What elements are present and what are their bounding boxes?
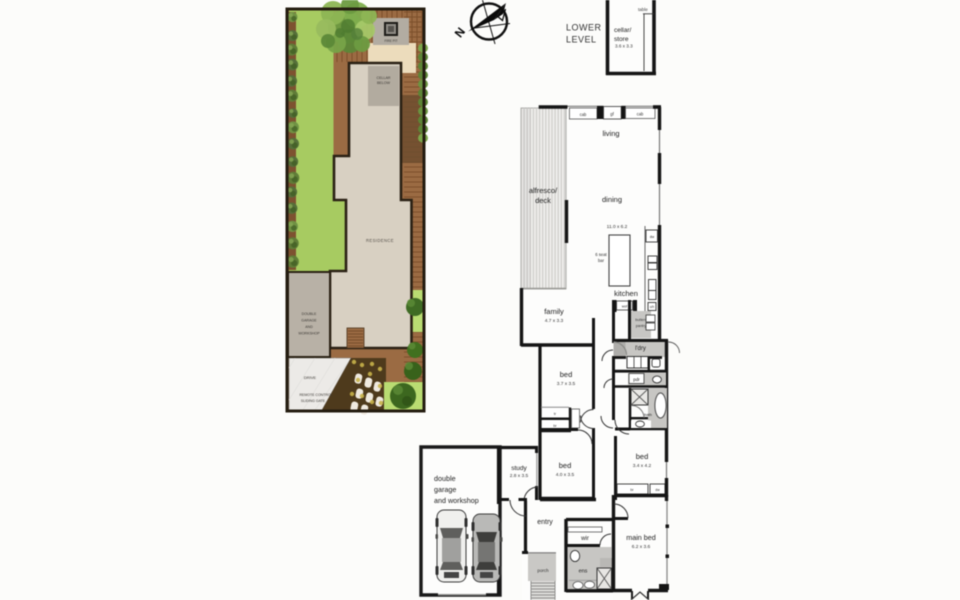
svg-text:REMOTE CONTROL: REMOTE CONTROL xyxy=(299,393,332,397)
svg-text:3.4 x 4.2: 3.4 x 4.2 xyxy=(633,463,652,469)
svg-text:entry: entry xyxy=(537,519,553,526)
svg-text:DRIVE: DRIVE xyxy=(304,375,317,380)
svg-text:GARAGE: GARAGE xyxy=(301,319,317,323)
svg-text:family: family xyxy=(544,307,564,316)
svg-text:bath: bath xyxy=(644,412,652,417)
svg-text:3.7 x 3.5: 3.7 x 3.5 xyxy=(557,381,576,387)
svg-text:garage: garage xyxy=(434,485,456,494)
svg-text:cab: cab xyxy=(637,112,644,117)
svg-text:3.6 x 3.3: 3.6 x 3.3 xyxy=(615,44,633,49)
svg-text:cellar/: cellar/ xyxy=(614,27,632,34)
svg-text:living: living xyxy=(602,129,619,138)
svg-text:double: double xyxy=(434,474,456,483)
svg-text:RESIDENCE: RESIDENCE xyxy=(366,238,394,243)
svg-text:DOUBLE: DOUBLE xyxy=(302,312,317,316)
svg-text:butlers: butlers xyxy=(635,318,646,322)
svg-text:dining: dining xyxy=(602,195,622,204)
svg-text:6 seat: 6 seat xyxy=(595,252,607,257)
svg-text:CELLAR: CELLAR xyxy=(377,76,391,80)
svg-text:wir: wir xyxy=(580,536,589,542)
svg-text:study: study xyxy=(511,465,527,472)
svg-text:pdr: pdr xyxy=(633,377,640,382)
svg-text:bar: bar xyxy=(598,258,605,263)
svg-text:SLIDING GATE: SLIDING GATE xyxy=(301,399,326,403)
svg-text:2.8 x 3.5: 2.8 x 3.5 xyxy=(510,473,529,479)
svg-text:alfresco/: alfresco/ xyxy=(529,186,558,195)
svg-text:main bed: main bed xyxy=(626,533,656,542)
svg-text:cab: cab xyxy=(580,112,587,117)
svg-text:4.7 x 3.3: 4.7 x 3.3 xyxy=(545,318,564,324)
svg-text:table: table xyxy=(638,7,648,12)
svg-text:and workshop: and workshop xyxy=(434,496,479,505)
svg-text:bed: bed xyxy=(560,370,573,379)
svg-text:11.0 x 6.2: 11.0 x 6.2 xyxy=(607,224,628,230)
svg-text:bed: bed xyxy=(559,461,572,470)
svg-text:6.2 x 3.6: 6.2 x 3.6 xyxy=(632,544,651,550)
svg-text:wof: wof xyxy=(622,305,628,309)
svg-text:store: store xyxy=(614,36,629,43)
svg-text:dw: dw xyxy=(655,488,660,492)
svg-text:AND: AND xyxy=(305,325,313,329)
svg-text:bed: bed xyxy=(636,452,649,461)
svg-text:4.0 x 3.5: 4.0 x 3.5 xyxy=(556,472,575,478)
svg-text:ens: ens xyxy=(579,569,588,575)
svg-text:FIRE PIT: FIRE PIT xyxy=(384,39,397,43)
svg-text:l'dry: l'dry xyxy=(635,346,646,352)
svg-text:deck: deck xyxy=(535,196,551,205)
svg-text:LEVEL: LEVEL xyxy=(566,34,597,44)
svg-text:BELOW: BELOW xyxy=(377,81,391,85)
svg-text:LOWER: LOWER xyxy=(566,23,602,33)
svg-text:WORKSHOP: WORKSHOP xyxy=(298,332,320,336)
svg-text:dw: dw xyxy=(650,235,655,239)
svg-text:pantry: pantry xyxy=(636,324,647,328)
svg-text:o/h: o/h xyxy=(650,305,655,309)
svg-text:porch: porch xyxy=(537,568,549,573)
svg-text:kitchen: kitchen xyxy=(614,289,638,298)
